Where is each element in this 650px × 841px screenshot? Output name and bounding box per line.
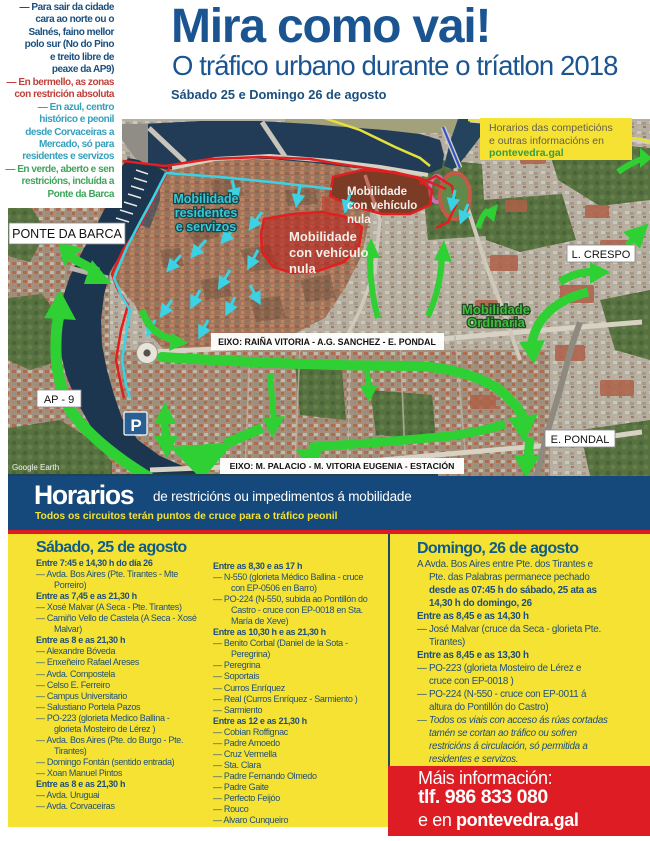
svg-text:con vehículo: con vehículo [347, 200, 417, 212]
svg-text:Google Earth: Google Earth [12, 463, 59, 472]
svg-text:E. PONDAL: E. PONDAL [551, 434, 610, 446]
svg-text:nula: nula [289, 261, 316, 276]
svg-text:Ordinaria: Ordinaria [467, 315, 526, 330]
svg-text:P: P [130, 416, 141, 435]
svg-text:e servizos: e servizos [176, 220, 237, 234]
svg-text:PONTE DA BARCA: PONTE DA BARCA [12, 227, 122, 241]
svg-text:L. CRESPO: L. CRESPO [572, 249, 631, 261]
svg-text:Mobilidade: Mobilidade [347, 186, 407, 198]
svg-text:EIXO: M. PALACIO - M. VITORIA: EIXO: M. PALACIO - M. VITORIA EUGENIA - … [230, 460, 455, 471]
svg-text:EIXO: RAIÑA VITORIA - A.G. SAN: EIXO: RAIÑA VITORIA - A.G. SANCHEZ - E. … [218, 337, 436, 347]
svg-text:nula: nula [347, 214, 371, 226]
svg-text:con vehículo: con vehículo [289, 245, 369, 260]
svg-text:AP - 9: AP - 9 [44, 394, 74, 406]
svg-text:residentes: residentes [175, 206, 238, 220]
svg-text:Mobilidade: Mobilidade [289, 229, 357, 244]
svg-text:Mobilidade: Mobilidade [173, 192, 238, 206]
